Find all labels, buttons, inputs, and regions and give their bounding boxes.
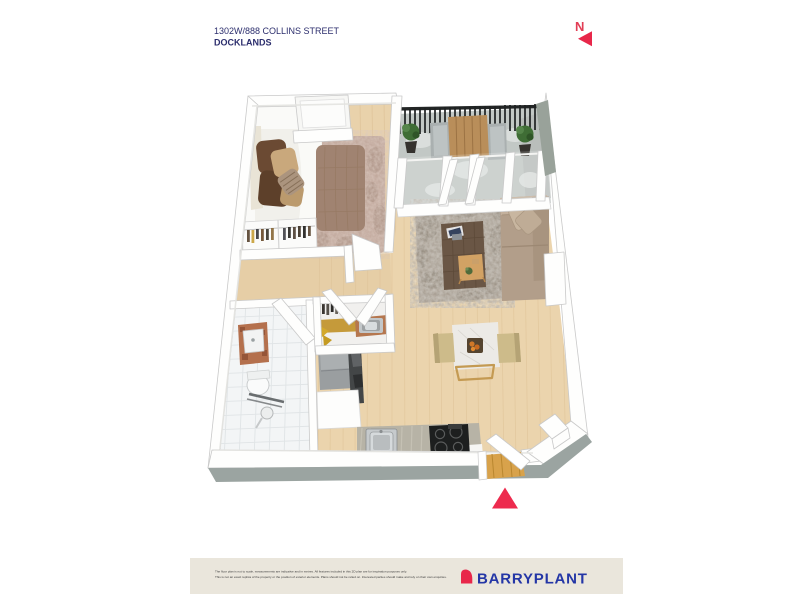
svg-text:1302W/888 COLLINS STREET: 1302W/888 COLLINS STREET [214,26,340,36]
svg-text:N: N [575,19,584,34]
svg-text:BARRYPLANT: BARRYPLANT [477,571,588,588]
svg-text:The floor plan is not to scale: The floor plan is not to scale, measurem… [215,570,407,574]
svg-text:DOCKLANDS: DOCKLANDS [214,38,272,48]
svg-text:This is not an exact replica o: This is not an exact replica of the prop… [215,575,447,579]
